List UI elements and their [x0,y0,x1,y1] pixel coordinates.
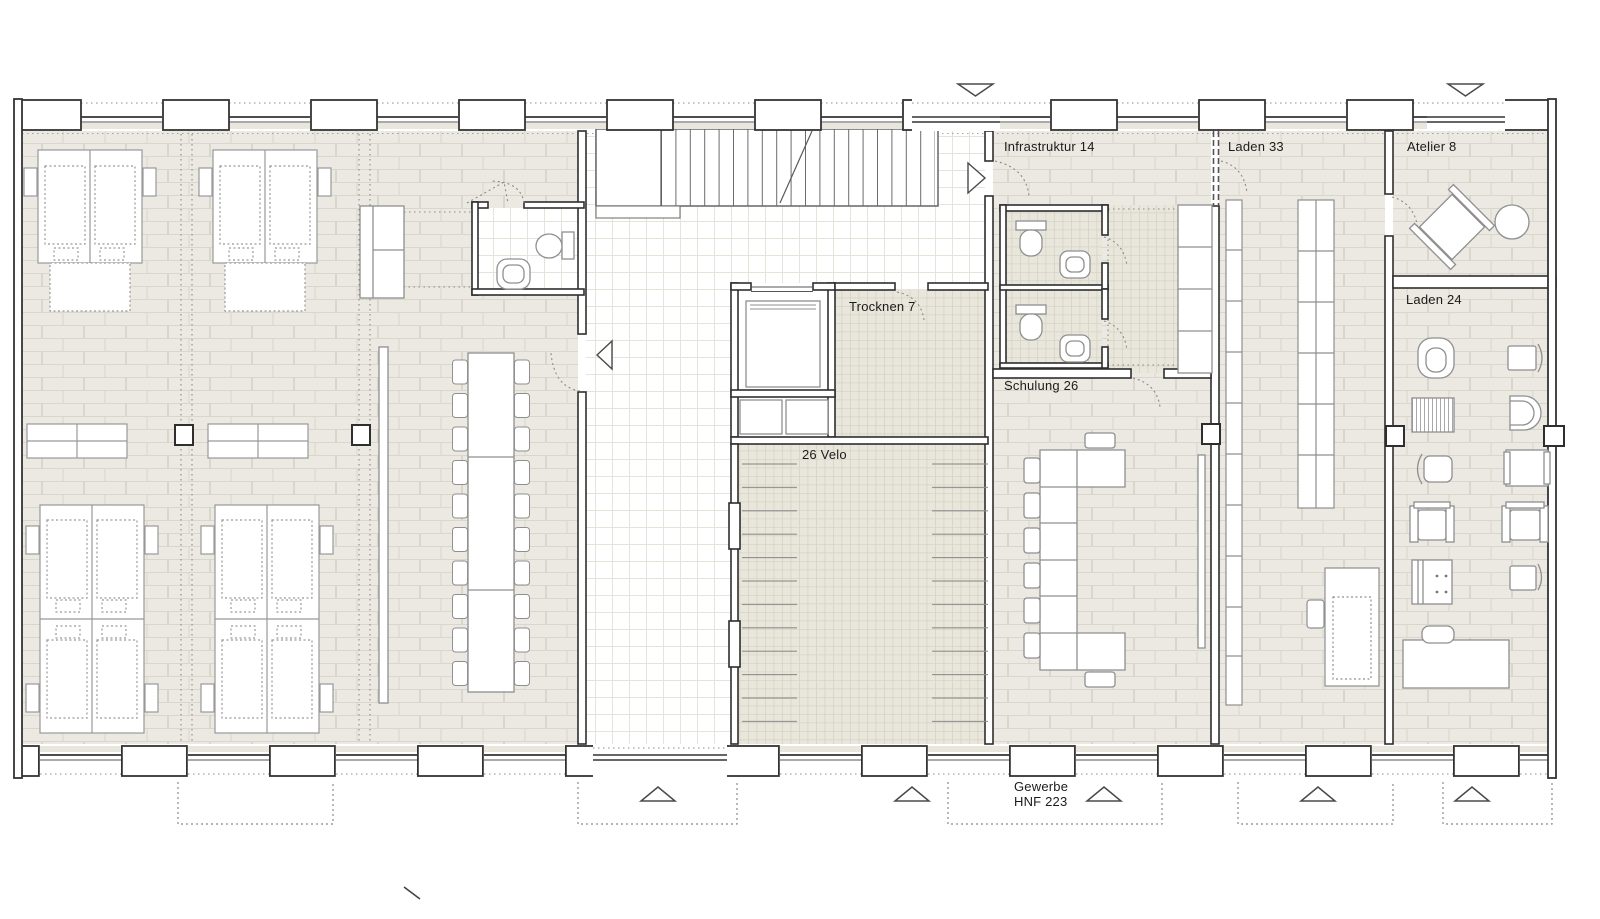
entrance-triangle-icon [1301,787,1335,801]
chair-display [1412,398,1454,432]
sink [1060,251,1090,278]
entrance-bottom-corridor [593,744,727,778]
elevator-car [746,301,820,387]
lounge-table [208,424,308,458]
entrance-top [912,99,1000,131]
partition-board [379,347,388,703]
room-label-infrastruktur: Infrastruktur 14 [1004,139,1095,154]
shelf-unit [1226,200,1242,705]
entrance-triangle-icon [895,787,929,801]
double-bed-pair [26,505,158,733]
chair-display [1510,396,1541,430]
staircase [596,129,938,218]
entrance-triangle-icon [1455,787,1489,801]
annotation-gewerbe: Gewerbe HNF 223 [1014,779,1068,809]
double-bed-pair [201,505,333,733]
sink [497,259,530,289]
column [175,425,193,445]
column [1386,426,1404,446]
stray-pencil-mark [404,887,420,899]
chair-display [1418,338,1454,378]
entrance-triangle-icon [958,84,993,96]
patio-outlines [178,782,1552,824]
toilet [1016,305,1046,340]
appliance [740,400,782,434]
annotation-gewerbe-line2: HNF 223 [1014,794,1068,809]
locker-cabinet [1178,205,1212,373]
floor-plan: Infrastruktur 14 Laden 33 Atelier 8 Lade… [0,0,1600,919]
stool [1495,205,1529,239]
chair [1307,600,1324,628]
kitchenette [360,206,404,298]
room-label-velo: 26 Velo [802,447,847,462]
room-label-trocknen: Trocknen 7 [849,299,916,314]
room-label-atelier: Atelier 8 [1407,139,1457,154]
chair-display [1410,502,1454,542]
entrance-triangle-icon [1448,84,1483,96]
chair [1422,626,1454,643]
chair-display [1412,560,1452,604]
sink [1060,335,1090,362]
appliance [786,400,828,434]
entrance-top-right [1427,99,1505,131]
chair-row [514,356,530,691]
room-label-laden24: Laden 24 [1406,292,1462,307]
entrance-triangle-icon [1087,787,1121,801]
whiteboard [1198,455,1205,648]
floor-plan-drawing [0,0,1600,919]
column [352,425,370,445]
chair-row [452,356,468,691]
chair-display [1502,502,1548,542]
column [1544,426,1564,446]
lounge-table [27,424,127,458]
annotation-gewerbe-line1: Gewerbe [1014,779,1068,794]
entrance-triangle-icon [641,787,675,801]
column [1202,424,1220,444]
room-label-schulung: Schulung 26 [1004,378,1078,393]
glass-partition [1214,131,1219,206]
chair-display [1504,450,1550,486]
toilet [1016,221,1046,256]
shelf-unit [1298,200,1334,508]
toilet [536,232,574,259]
dining-table [468,353,514,692]
room-label-laden33: Laden 33 [1228,139,1284,154]
